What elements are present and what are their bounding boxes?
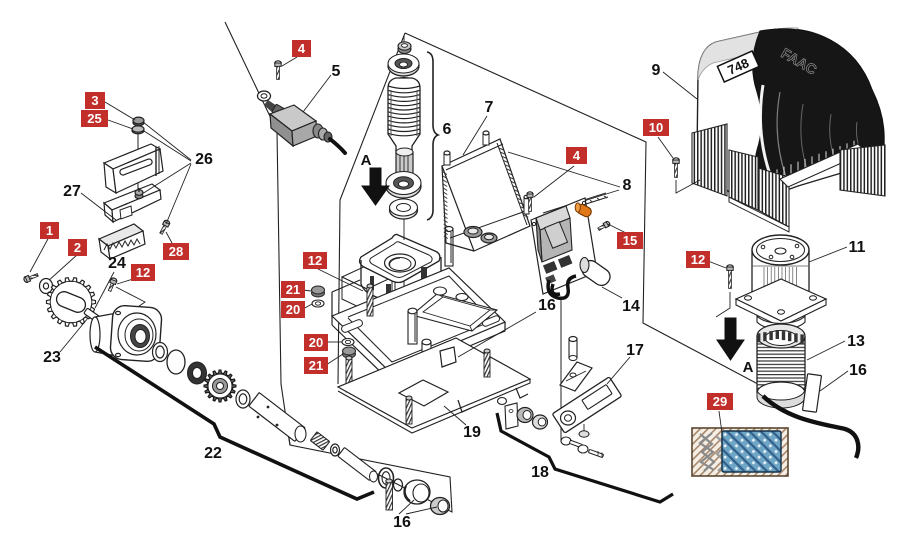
svg-text:1: 1 bbox=[46, 223, 53, 238]
svg-text:13: 13 bbox=[847, 333, 865, 350]
svg-text:12: 12 bbox=[136, 265, 150, 280]
svg-text:5: 5 bbox=[332, 63, 341, 80]
svg-text:14: 14 bbox=[622, 298, 640, 315]
svg-text:3: 3 bbox=[91, 93, 98, 108]
svg-text:A: A bbox=[361, 152, 372, 169]
svg-text:8: 8 bbox=[623, 177, 632, 194]
svg-text:21: 21 bbox=[286, 282, 300, 297]
svg-text:24: 24 bbox=[108, 255, 126, 272]
svg-text:6: 6 bbox=[443, 121, 452, 138]
svg-text:17: 17 bbox=[626, 342, 644, 359]
svg-text:20: 20 bbox=[309, 335, 323, 350]
svg-text:23: 23 bbox=[43, 349, 61, 366]
svg-text:20: 20 bbox=[286, 302, 300, 317]
svg-text:28: 28 bbox=[169, 244, 183, 259]
svg-text:7: 7 bbox=[485, 99, 494, 116]
svg-text:12: 12 bbox=[308, 253, 322, 268]
svg-text:29: 29 bbox=[713, 394, 727, 409]
svg-text:15: 15 bbox=[623, 233, 637, 248]
svg-text:18: 18 bbox=[531, 464, 549, 481]
svg-text:12: 12 bbox=[691, 252, 705, 267]
svg-text:22: 22 bbox=[204, 445, 222, 462]
svg-text:16: 16 bbox=[538, 297, 556, 314]
svg-text:9: 9 bbox=[652, 62, 661, 79]
svg-text:21: 21 bbox=[309, 358, 323, 373]
svg-text:10: 10 bbox=[649, 120, 663, 135]
svg-text:27: 27 bbox=[63, 183, 81, 200]
svg-text:19: 19 bbox=[463, 424, 481, 441]
svg-text:26: 26 bbox=[195, 151, 213, 168]
svg-text:2: 2 bbox=[74, 240, 81, 255]
svg-text:25: 25 bbox=[87, 111, 101, 126]
svg-text:A: A bbox=[743, 359, 754, 376]
svg-text:16: 16 bbox=[849, 362, 867, 379]
svg-text:4: 4 bbox=[298, 41, 306, 56]
svg-text:11: 11 bbox=[849, 239, 866, 256]
svg-text:16: 16 bbox=[393, 514, 411, 531]
svg-text:4: 4 bbox=[573, 148, 581, 163]
